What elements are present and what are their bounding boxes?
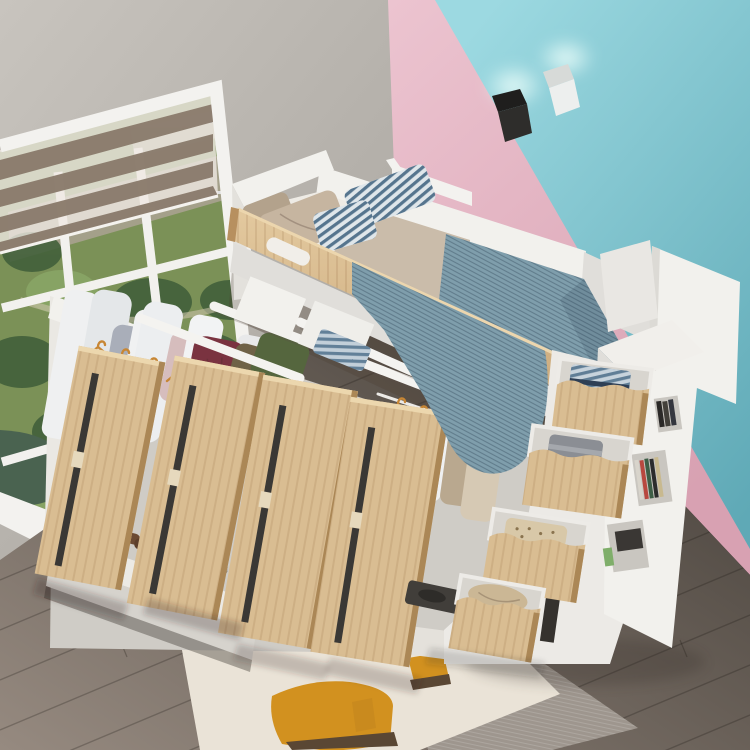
books-top bbox=[656, 399, 676, 427]
scene-illustration bbox=[0, 0, 750, 750]
room-photo bbox=[0, 0, 750, 750]
stair-inner-guard bbox=[600, 240, 658, 332]
rug-orange-small bbox=[352, 698, 376, 732]
stair-drawer-2 bbox=[520, 423, 634, 519]
stair-drawer-4 bbox=[446, 573, 546, 663]
